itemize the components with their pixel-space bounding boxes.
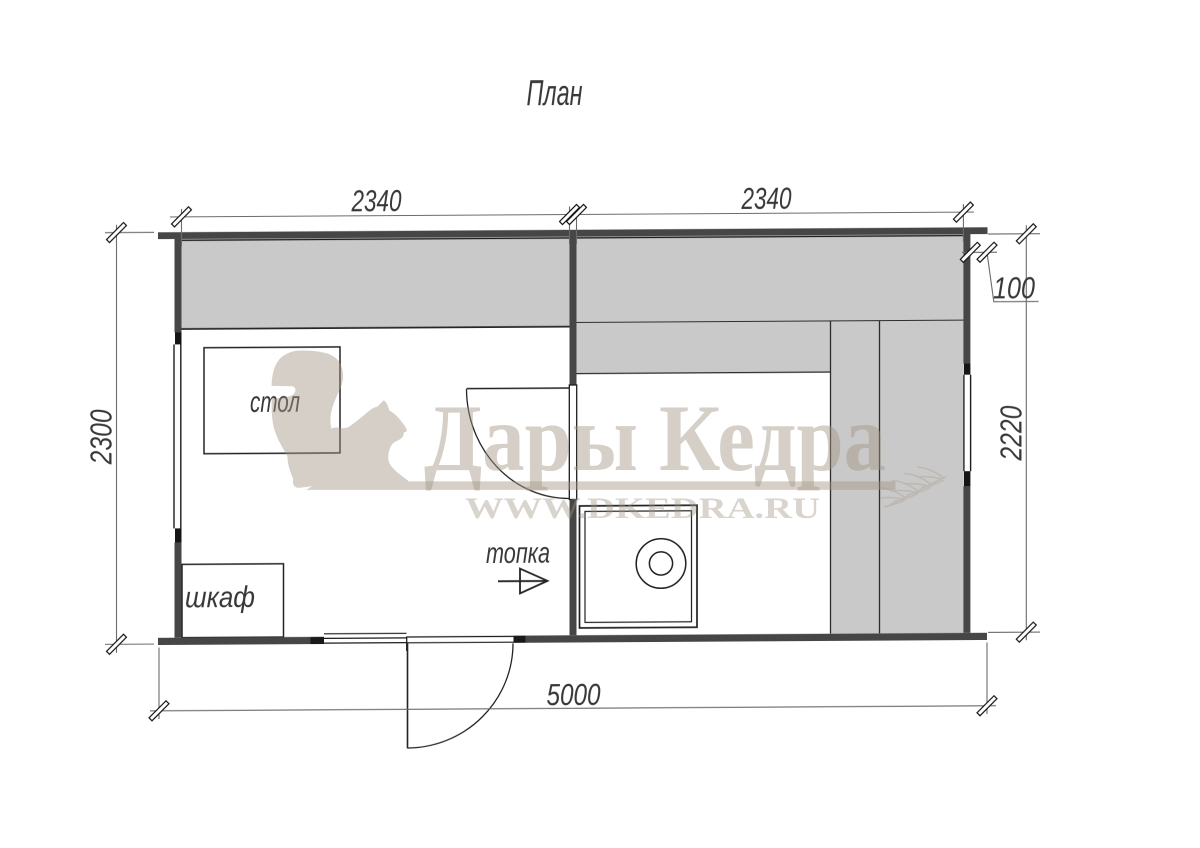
svg-text:2220: 2220 xyxy=(994,405,1029,461)
svg-text:топка: топка xyxy=(486,537,550,570)
svg-text:Дары Кедра: Дары Кедра xyxy=(424,385,886,491)
svg-text:План: План xyxy=(527,72,583,113)
svg-text:WWW.DKEDRA.RU: WWW.DKEDRA.RU xyxy=(465,492,820,525)
svg-text:5000: 5000 xyxy=(547,677,601,712)
svg-text:2340: 2340 xyxy=(741,180,792,215)
svg-text:100: 100 xyxy=(993,270,1035,305)
svg-text:шкаф: шкаф xyxy=(185,581,255,614)
svg-text:2340: 2340 xyxy=(351,183,402,218)
svg-text:2300: 2300 xyxy=(83,409,118,465)
